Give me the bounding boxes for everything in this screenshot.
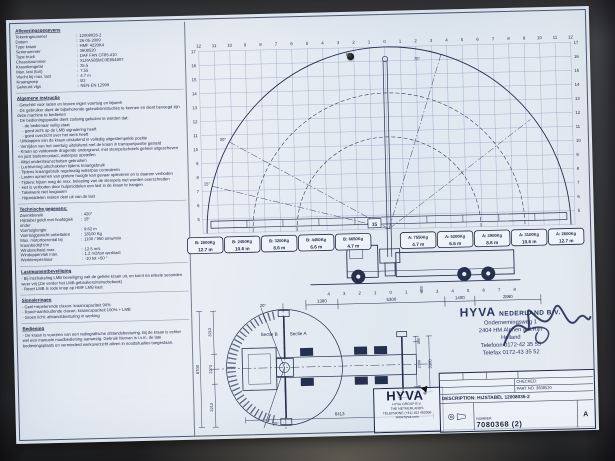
load-capacity-boxes: B: 2000Kg12.7 mB: 2450Kg10.6 mB: 3200Kg8… xyxy=(187,228,584,254)
dimension-value: 2700 xyxy=(417,360,421,368)
load-box-reach: 6.6 m xyxy=(310,244,322,249)
top-scale-number: 11 xyxy=(212,43,217,48)
right-scale-number: 5 xyxy=(578,208,581,213)
top-scale-number: 1 xyxy=(399,39,402,44)
bottom-scale-number: 1 xyxy=(405,289,408,294)
left-scale-number: 6 xyxy=(197,203,200,208)
top-scale-number: 11 xyxy=(553,35,558,40)
dimension-value: 1400 xyxy=(455,295,465,300)
outrigger-pad xyxy=(397,331,407,336)
spec-value: NEN-EN 12999 xyxy=(80,81,181,88)
top-scale-number: 3 xyxy=(430,38,433,43)
top-scale-number: 4 xyxy=(321,40,324,45)
bottom-scale-number: 3 xyxy=(436,289,439,294)
wheel-hub xyxy=(462,271,467,276)
left-scale-number: 15 xyxy=(192,77,198,82)
tyre-top xyxy=(375,376,388,384)
load-moment-block: Lastmomentbeveiliging - Bij inschakeling… xyxy=(20,262,189,295)
top-scale-number: 12 xyxy=(196,43,202,48)
top-scale-number: 6 xyxy=(476,37,479,42)
right-scale-number: 9 xyxy=(576,152,579,157)
bottom-scale-number: 4 xyxy=(451,288,454,293)
load-box-capacity: B: 3200Kg xyxy=(269,238,290,243)
grid-line xyxy=(385,47,389,229)
wheel-hub xyxy=(356,274,361,279)
top-scale-number: 1 xyxy=(368,39,371,44)
top-scale-number: 12 xyxy=(568,34,574,39)
left-scale-number: 10 xyxy=(193,147,199,152)
load-box-reach: 12.7 m xyxy=(559,238,574,243)
projection-symbol-cell xyxy=(440,403,474,431)
right-scale-number: 16 xyxy=(574,54,580,59)
grid-line xyxy=(338,48,342,230)
load-box-reach: 8.6 m xyxy=(273,245,285,250)
operation-block: Bediening - De kraan is voorzien van een… xyxy=(21,319,190,352)
grid-line xyxy=(493,44,497,226)
outrigger-pad xyxy=(278,310,289,316)
stamp-brand-logo: HYVA xyxy=(459,305,496,320)
left-scale-number: 17 xyxy=(191,49,197,54)
grid-line xyxy=(540,43,544,225)
grid-line xyxy=(524,44,528,226)
bottom-scale-number: 8 xyxy=(513,287,516,292)
right-scale-number: 7 xyxy=(577,180,580,185)
load-box-capacity: A: 5200Kg xyxy=(445,234,466,239)
centerline-horizontal xyxy=(210,364,430,369)
dealer-stamp: HYVA NEDERLAND B.V. Ondernemingsweg 1 24… xyxy=(427,303,595,375)
dimension-value: 300 xyxy=(417,338,421,344)
tyre-top xyxy=(354,346,367,354)
tyre-top xyxy=(374,346,387,354)
load-box-capacity: A: 3900Kg xyxy=(482,233,503,238)
top-scale-number: 8 xyxy=(259,42,262,47)
right-scale-number: 10 xyxy=(576,138,582,143)
sector-angle-label: 20° xyxy=(273,421,280,426)
left-scale-number: 13 xyxy=(192,105,198,110)
bottom-scale-number: 5 xyxy=(467,288,470,293)
load-box-capacity: B: 2450Kg xyxy=(232,239,253,244)
frame-rail xyxy=(276,354,416,357)
sector-a-label: Sectie A xyxy=(290,331,308,336)
photo-of-crane-load-chart-placard: Afleveringsgegevens Tekeningnummer120080… xyxy=(0,0,615,461)
right-scale-number: 11 xyxy=(576,124,581,129)
right-scale-number: 17 xyxy=(574,40,580,45)
top-scale-number: 7 xyxy=(275,42,278,47)
left-scale-number: 12 xyxy=(193,119,199,124)
left-scale-number: 9 xyxy=(196,161,199,166)
boom-angle-radials xyxy=(209,52,533,233)
dealer-stamp-text: HYVA NEDERLAND B.V. Ondernemingsweg 1 24… xyxy=(427,303,594,358)
tyre-top xyxy=(355,376,368,384)
top-scale-number: 9 xyxy=(523,35,526,40)
top-scale-number: 5 xyxy=(461,37,464,42)
cab-top-inner xyxy=(248,354,271,385)
top-scale-number: 0 xyxy=(383,39,386,44)
top-scale-number: 2 xyxy=(414,38,417,43)
sector-angle-label: 20° xyxy=(260,303,267,308)
load-box-capacity: A: 2600Kg xyxy=(556,231,577,236)
load-box-reach: 10.6 m xyxy=(235,246,250,251)
boom-angle-label: 30° xyxy=(220,137,227,142)
grid-line xyxy=(354,48,358,230)
title-block-cell xyxy=(463,373,487,380)
right-scale-number: 6 xyxy=(577,194,580,199)
top-scale-number: 10 xyxy=(227,43,233,48)
crane-column xyxy=(385,263,395,276)
grid-line xyxy=(462,45,466,227)
left-text-column: Afleveringsgegevens Tekeningnummer120080… xyxy=(14,22,195,440)
grid-line xyxy=(416,46,420,228)
dimension-value: 2273 xyxy=(208,365,213,374)
right-scale-number: 12 xyxy=(575,110,581,115)
grid-line xyxy=(230,51,234,233)
left-scale-number: 5 xyxy=(197,217,200,222)
grid-line xyxy=(447,45,451,227)
dimension-value: 6413 xyxy=(335,411,345,416)
top-scale-number: 2 xyxy=(352,40,355,45)
load-box-capacity: A: 3100Kg xyxy=(519,232,540,237)
sector-b-label: Sectie B xyxy=(260,332,277,337)
technical-data-block: Technische gegevens: Zwenkbereik420° Hij… xyxy=(18,200,187,267)
grid-line xyxy=(214,51,218,233)
left-scale-number: 16 xyxy=(191,63,197,68)
dimension-value: 3213 xyxy=(207,328,212,337)
top-scale-number: 10 xyxy=(537,35,543,40)
dimension-value: 8700 xyxy=(195,364,200,374)
load-box-capacity: B: 2000Kg xyxy=(195,240,216,245)
bottom-scale-number: 3 xyxy=(343,291,346,296)
scale-numbers: 1211109876543210123456789101112171615141… xyxy=(191,34,585,299)
hyva-logo: HYVA® xyxy=(386,389,427,403)
tyre-top xyxy=(301,378,314,386)
fastener-dot xyxy=(347,53,354,60)
delivery-data-block: Afleveringsgegevens Tekeningnummer120080… xyxy=(14,22,184,93)
crane-base xyxy=(380,249,400,263)
spec-label: Werktemperatuur xyxy=(21,257,80,263)
grid-line xyxy=(245,50,249,232)
top-scale-number: 5 xyxy=(306,41,309,46)
spec-label: Gekeurd vlgs xyxy=(16,83,75,89)
bottom-scale-number: 2 xyxy=(358,291,361,296)
drawing-number: 7080368 (2) xyxy=(476,418,575,429)
right-scale-number: 8 xyxy=(577,166,580,171)
grid-line xyxy=(323,48,327,230)
top-scale-number: 6 xyxy=(290,41,293,46)
outrigger-beam xyxy=(285,376,286,418)
bottom-scale-number: 1 xyxy=(374,290,377,295)
cargo-body xyxy=(396,250,515,277)
grid-line xyxy=(431,46,435,228)
top-scale-number: 9 xyxy=(244,42,247,47)
top-scale-number: 8 xyxy=(507,36,510,41)
boom-angle-label: 15° xyxy=(204,181,211,186)
number-cell: NUMBER 7080368 (2) xyxy=(474,400,578,430)
right-scale-number: 13 xyxy=(575,96,581,101)
drawing-title-block: CHECKED: PART NO. 3608520 DESCRIPTION: H… xyxy=(439,369,596,433)
right-scale-number: 15 xyxy=(574,68,580,73)
dimension-value: 5300 xyxy=(386,297,396,302)
load-box-reach: 8.6 m xyxy=(486,240,498,245)
placard-sheet: Afleveringsgegevens Tekeningnummer120080… xyxy=(6,6,599,444)
bottom-scale-number: 7 xyxy=(498,287,501,292)
grid-line xyxy=(261,50,265,232)
rear-outrigger-beam xyxy=(402,337,403,393)
top-scale-number: 3 xyxy=(337,40,340,45)
left-scale-number: 14 xyxy=(192,91,198,96)
load-box-reach: 6.6 m xyxy=(449,241,461,246)
dimension-value: 2860 xyxy=(503,294,513,299)
load-box-reach: 10.6 m xyxy=(522,239,537,244)
operation-text: - De kraan is voorzien van een radiograf… xyxy=(23,329,188,348)
bottom-scale-number: 6 xyxy=(482,288,485,293)
signals-block: Signaleringen - Geel+repeterende claxon:… xyxy=(21,291,190,324)
left-scale-number: 8 xyxy=(196,175,199,180)
grid-line xyxy=(276,50,280,232)
grid-line xyxy=(555,43,559,225)
ground-line xyxy=(310,280,520,285)
left-scale-number: 11 xyxy=(193,133,198,138)
dimension-value: 1380 xyxy=(317,298,327,303)
grid-line xyxy=(292,49,296,231)
bottom-scale-number: 0 xyxy=(389,290,392,295)
dimension-value: 800 xyxy=(420,286,424,292)
hyva-logo-text: HYVA xyxy=(386,388,424,404)
revision-cell: A xyxy=(577,400,594,427)
load-box-capacity: B: 6650Kg xyxy=(343,236,364,241)
load-box-reach: 4.7 m xyxy=(412,242,424,247)
left-scale-number: 7 xyxy=(197,189,200,194)
general-instructions-block: Algemene instructie - Geschikt voor lade… xyxy=(16,89,187,204)
title-block-cell xyxy=(440,373,464,380)
grid-line xyxy=(307,49,311,231)
boom-number: 15 xyxy=(372,222,378,228)
stamp-company: NEDERLAND B.V. xyxy=(499,308,561,317)
boom-angle-label: 70° xyxy=(414,56,421,61)
load-box-capacity: B: 4450Kg xyxy=(306,237,327,242)
bottom-scale-number: 4 xyxy=(327,291,330,296)
tyre-top xyxy=(300,348,313,356)
outrigger-beam xyxy=(284,316,285,358)
load-box-reach: 4.7 m xyxy=(347,243,359,248)
right-scale-number: 14 xyxy=(575,82,581,87)
dimension-value: 3213 xyxy=(209,403,214,412)
top-scale-number: 4 xyxy=(445,37,448,42)
frame-rail xyxy=(277,374,417,377)
wheel-hub xyxy=(486,271,491,276)
top-scale-number: 7 xyxy=(492,36,495,41)
projection-symbol-icon xyxy=(446,411,468,423)
load-box-capacity: A: 7550Kg xyxy=(408,234,429,239)
load-box-reach: 12.7 m xyxy=(198,247,213,252)
spec-value: -10 tot +50 ° xyxy=(85,254,186,261)
hyva-logo-box: HYVA® HYVA GROUP B.V. THE NETHERLANDS TE… xyxy=(373,387,444,434)
